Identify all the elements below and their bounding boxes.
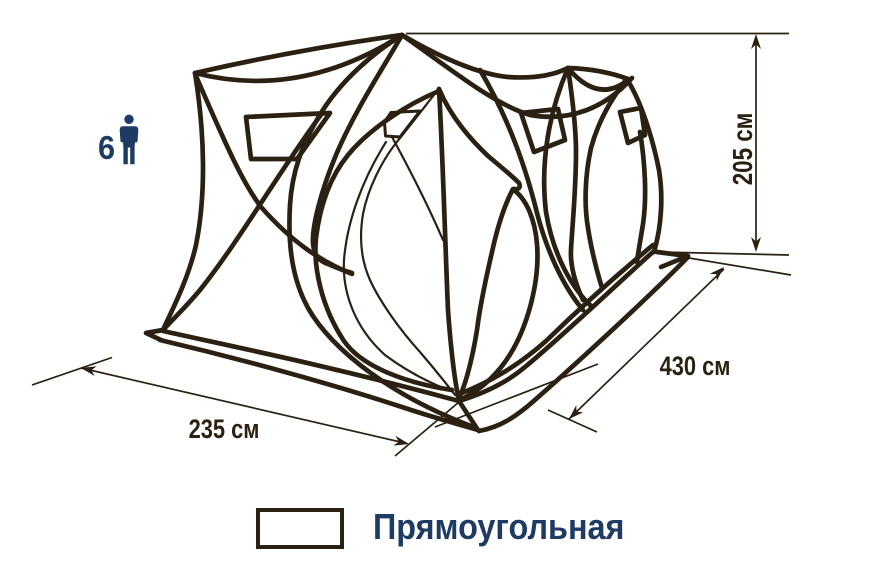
svg-text:430 см: 430 см: [660, 352, 731, 382]
svg-text:6: 6: [98, 129, 115, 166]
svg-text:235 см: 235 см: [189, 415, 260, 445]
svg-text:205 см: 205 см: [728, 113, 759, 186]
svg-text:Прямоугольная: Прямоугольная: [373, 507, 624, 547]
